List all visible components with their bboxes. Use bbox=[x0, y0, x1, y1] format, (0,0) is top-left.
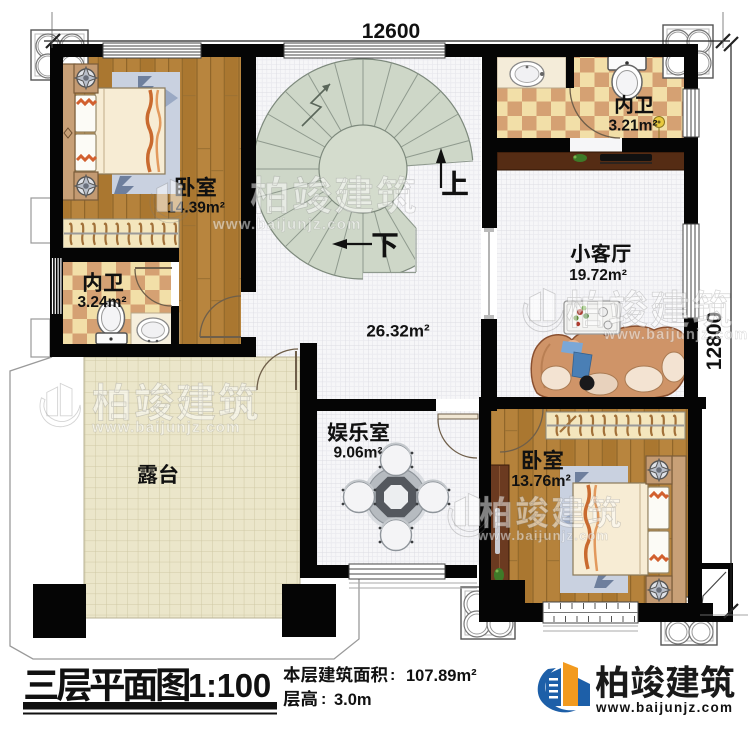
svg-text:www.baijunjz.com: www.baijunjz.com bbox=[595, 700, 733, 715]
svg-text:1:100: 1:100 bbox=[188, 667, 271, 704]
svg-text:3.21m²: 3.21m² bbox=[608, 118, 657, 135]
svg-text:13.76m²: 13.76m² bbox=[511, 473, 571, 490]
svg-text:www.baijunjz.com: www.baijunjz.com bbox=[603, 327, 748, 343]
svg-text:3.0m: 3.0m bbox=[334, 691, 372, 709]
svg-text:26.32m²: 26.32m² bbox=[366, 322, 430, 341]
svg-text:107.89m²: 107.89m² bbox=[406, 667, 477, 685]
svg-text:3.24m²: 3.24m² bbox=[77, 294, 126, 311]
svg-text:12600: 12600 bbox=[362, 20, 420, 43]
svg-text:www.baijunjz.com: www.baijunjz.com bbox=[477, 528, 609, 543]
svg-text:19.72m²: 19.72m² bbox=[569, 267, 627, 284]
svg-text:www.baijunjz.com: www.baijunjz.com bbox=[212, 216, 362, 233]
svg-text:www.baijunjz.com: www.baijunjz.com bbox=[91, 419, 241, 436]
svg-text:9.06m²: 9.06m² bbox=[333, 445, 382, 462]
svg-text::: : bbox=[321, 691, 326, 708]
svg-text::: : bbox=[390, 667, 395, 684]
